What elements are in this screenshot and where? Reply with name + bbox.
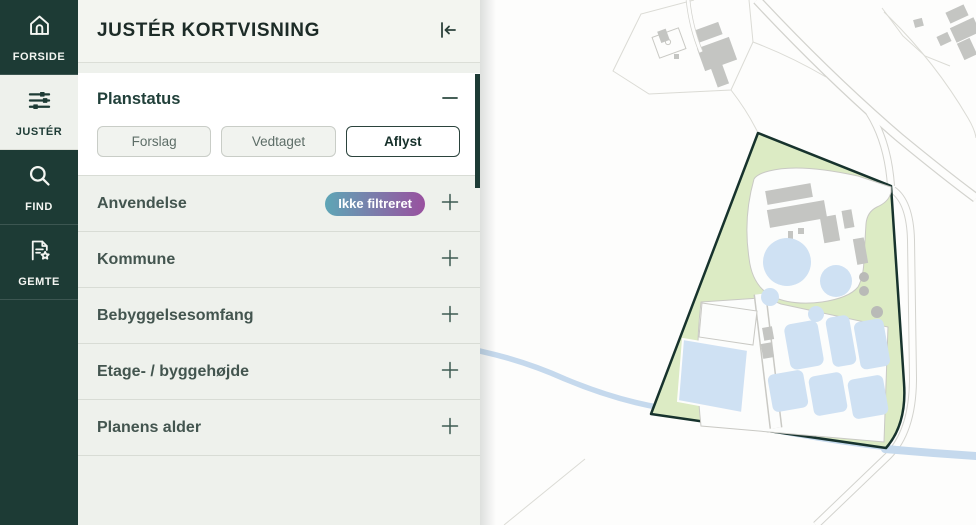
expand-section-button[interactable] bbox=[440, 360, 460, 383]
section-title: Planstatus bbox=[97, 90, 180, 109]
section-etage-byggehojde[interactable]: Etage- / byggehøjde bbox=[78, 343, 480, 399]
sidebar-item-forside[interactable]: FORSIDE bbox=[0, 0, 78, 75]
sidebar-item-label: FORSIDE bbox=[13, 51, 65, 63]
map-viewport[interactable] bbox=[480, 0, 976, 525]
sidebar-item-gemte[interactable]: GEMTE bbox=[0, 225, 78, 300]
filter-panel-header: JUSTÉR KORTVISNING bbox=[78, 0, 480, 63]
plus-icon bbox=[440, 248, 460, 271]
section-planens-alder[interactable]: Planens alder bbox=[78, 399, 480, 455]
collapse-panel-button[interactable] bbox=[436, 18, 460, 45]
sidebar-filler bbox=[0, 300, 78, 525]
section-title: Kommune bbox=[97, 251, 175, 269]
expand-section-button[interactable] bbox=[440, 248, 460, 271]
saved-plans-icon bbox=[26, 237, 53, 269]
panel-title: JUSTÉR KORTVISNING bbox=[97, 20, 320, 42]
plus-icon bbox=[440, 416, 460, 439]
home-icon bbox=[26, 12, 53, 44]
sidebar-item-find[interactable]: FIND bbox=[0, 150, 78, 225]
plus-icon bbox=[440, 192, 460, 215]
sidebar-item-juster[interactable]: JUSTÉR bbox=[0, 75, 78, 150]
section-title: Bebyggelsesomfang bbox=[97, 307, 253, 325]
section-planstatus: Planstatus Forslag Vedtaget Aflyst bbox=[78, 73, 480, 175]
plus-icon bbox=[440, 304, 460, 327]
plus-icon bbox=[440, 360, 460, 383]
planstatus-option-aflyst[interactable]: Aflyst bbox=[346, 126, 460, 157]
sidebar: FORSIDE JUSTÉR FIND bbox=[0, 0, 78, 525]
section-bebyggelsesomfang[interactable]: Bebyggelsesomfang bbox=[78, 287, 480, 343]
filter-panel: JUSTÉR KORTVISNING Planstatus bbox=[78, 0, 480, 525]
expand-section-button[interactable] bbox=[440, 416, 460, 439]
planstatus-option-forslag[interactable]: Forslag bbox=[97, 126, 211, 157]
sidebar-item-label: JUSTÉR bbox=[16, 126, 62, 138]
section-anvendelse[interactable]: Anvendelse Ikke filtreret bbox=[78, 175, 480, 231]
search-icon bbox=[26, 162, 53, 194]
expand-section-button[interactable] bbox=[440, 304, 460, 327]
section-title: Anvendelse bbox=[97, 195, 187, 213]
section-title: Etage- / byggehøjde bbox=[97, 363, 249, 381]
sidebar-item-label: FIND bbox=[25, 201, 53, 213]
sidebar-item-label: GEMTE bbox=[18, 276, 60, 288]
planstatus-option-vedtaget[interactable]: Vedtaget bbox=[221, 126, 335, 157]
section-kommune[interactable]: Kommune bbox=[78, 231, 480, 287]
minus-icon bbox=[440, 88, 460, 111]
map-canvas bbox=[480, 0, 976, 525]
sliders-icon bbox=[26, 87, 53, 119]
planstatus-options: Forslag Vedtaget Aflyst bbox=[97, 126, 460, 157]
expand-section-button[interactable] bbox=[440, 192, 460, 215]
panel-empty-area bbox=[78, 455, 480, 525]
collapse-section-button[interactable] bbox=[440, 88, 460, 111]
collapse-left-icon bbox=[436, 18, 460, 45]
section-title: Planens alder bbox=[97, 419, 201, 437]
app-window: FORSIDE JUSTÉR FIND bbox=[0, 0, 976, 525]
filter-status-badge: Ikke filtreret bbox=[325, 192, 425, 216]
